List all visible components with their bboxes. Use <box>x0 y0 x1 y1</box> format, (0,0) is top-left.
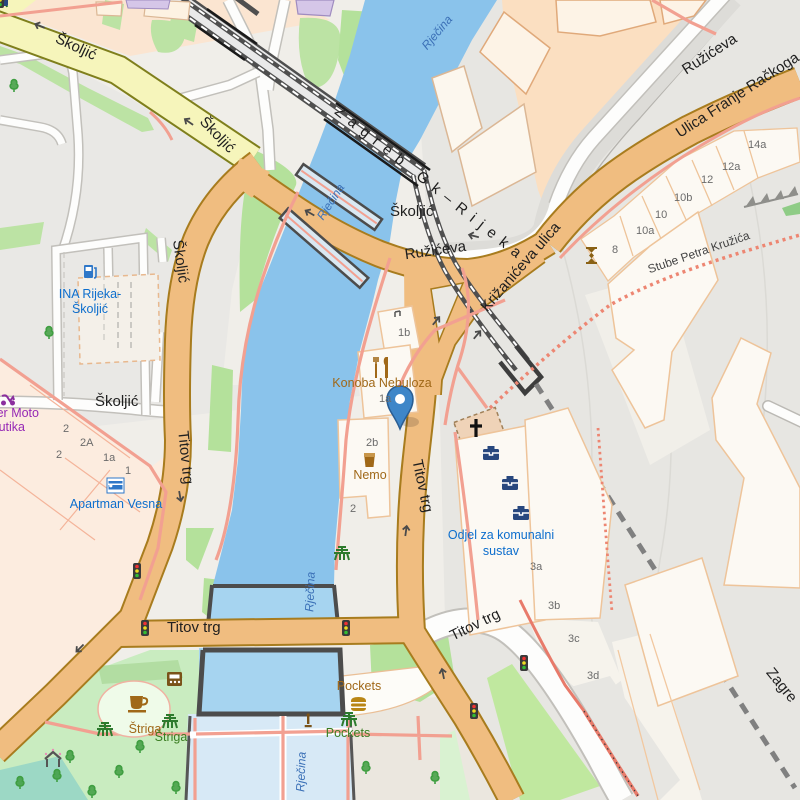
svg-text:10a: 10a <box>636 225 655 237</box>
svg-text:2: 2 <box>350 503 356 515</box>
svg-text:2b: 2b <box>366 437 378 449</box>
svg-text:12a: 12a <box>722 161 741 173</box>
svg-text:Apartman Vesna: Apartman Vesna <box>70 497 162 511</box>
svg-text:Nemo: Nemo <box>353 468 386 482</box>
svg-text:Odjel za komunalni: Odjel za komunalni <box>448 528 554 542</box>
svg-text:Školjić: Školjić <box>390 203 434 220</box>
svg-text:Rječina: Rječina <box>302 571 317 612</box>
svg-text:3d: 3d <box>587 670 599 682</box>
svg-text:autika: autika <box>0 420 25 434</box>
svg-text:Školjić: Školjić <box>95 393 139 410</box>
svg-text:14a: 14a <box>748 139 767 151</box>
svg-text:3c: 3c <box>568 633 580 645</box>
svg-text:Titov trg: Titov trg <box>167 619 221 636</box>
svg-text:10: 10 <box>655 209 667 221</box>
svg-text:1b: 1b <box>398 327 410 339</box>
svg-text:3a: 3a <box>530 561 543 573</box>
svg-text:Pockets: Pockets <box>326 726 370 740</box>
svg-text:2: 2 <box>63 423 69 435</box>
svg-text:2A: 2A <box>80 437 94 449</box>
svg-text:INA Rijeka-: INA Rijeka- <box>59 287 122 301</box>
svg-text:er Moto: er Moto <box>0 406 39 420</box>
svg-text:1: 1 <box>125 465 131 477</box>
svg-text:2: 2 <box>56 449 62 461</box>
svg-text:8: 8 <box>612 244 618 256</box>
svg-text:Pockets: Pockets <box>337 679 381 693</box>
svg-text:Konoba Nebuloza: Konoba Nebuloza <box>332 376 431 390</box>
svg-text:10b: 10b <box>674 192 692 204</box>
svg-text:12: 12 <box>701 174 713 186</box>
svg-text:Štriga: Štriga <box>155 729 188 744</box>
svg-text:Rječina: Rječina <box>293 751 308 792</box>
svg-text:1a: 1a <box>103 452 116 464</box>
svg-text:sustav: sustav <box>483 544 520 558</box>
svg-text:3b: 3b <box>548 600 560 612</box>
svg-text:Školjić: Školjić <box>72 301 108 316</box>
svg-text:1a: 1a <box>379 393 392 405</box>
